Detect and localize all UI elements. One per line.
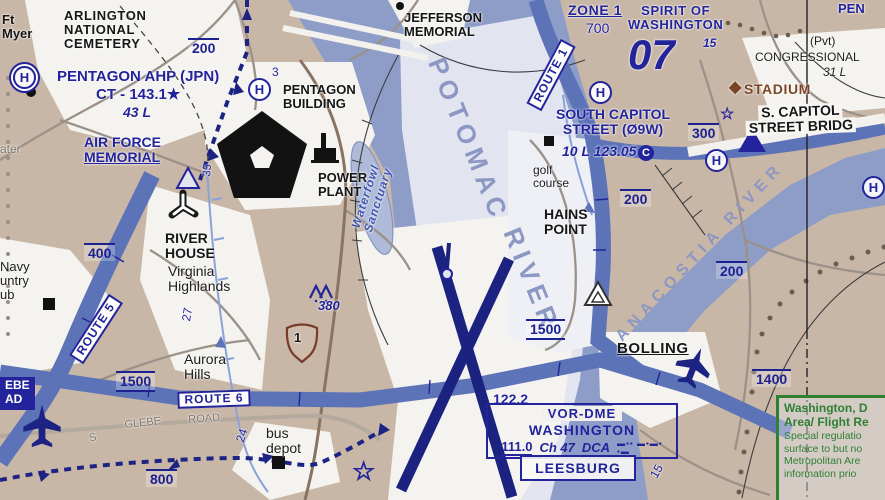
alt-200-nw: 200: [188, 38, 219, 56]
frz-note-box: Washington, DArea/ Flight ReSpecial regu…: [776, 395, 885, 500]
potomac-word: POTOMAC: [422, 54, 513, 226]
stadium-diamond: ◆: [729, 79, 741, 96]
star-waypoint-1: ☆: [720, 106, 734, 123]
route-5: ROUTE 5: [69, 294, 123, 364]
south-capitol-freq: 10 L 123.05: [562, 144, 636, 159]
aurora-hills: AuroraHills: [184, 352, 226, 382]
glebe-s: S: [88, 432, 98, 445]
vor-ident: DCA: [582, 440, 610, 455]
helipad-1: H: [13, 66, 36, 89]
air-force-memorial: AIR FORCEMEMORIAL: [84, 135, 161, 165]
mile-15: 15: [648, 462, 666, 480]
vor-freq: 111.0: [501, 439, 532, 456]
pvt: (Pvt): [810, 35, 835, 48]
jefferson-memorial: JEFFERSONMEMORIAL: [404, 11, 482, 39]
map-canvas[interactable]: FtMyerHARLINGTONNATIONALCEMETERY200PENTA…: [0, 0, 885, 500]
pentagon-building: PENTAGONBUILDING: [283, 83, 356, 111]
helipad-5: H: [862, 176, 885, 199]
vor-dme-box: VOR-DME WASHINGTON 111.0 Ch 47 DCA ▬▪▪ ▬…: [486, 403, 678, 459]
alt-300: 300: [688, 123, 719, 141]
alt-800: 800: [146, 469, 177, 487]
star-waypoint-2: ☆: [352, 458, 375, 486]
congressional: CONGRESSIONAL: [755, 51, 860, 64]
zone-1: ZONE 1: [568, 3, 622, 18]
hains-point: HAINSPOINT: [544, 207, 588, 237]
mt-380: 380: [318, 299, 340, 313]
leesburg-box: LEESBURG: [520, 455, 636, 481]
ft-myer: FtMyer: [2, 13, 32, 41]
route-1: ROUTE 1: [526, 39, 575, 111]
mile-24: 24: [234, 427, 250, 444]
route-6: ROUTE 6: [177, 389, 251, 408]
pentagon-ahp-name: PENTAGON AHP (JPN): [57, 69, 219, 85]
alt-400: 400: [84, 243, 115, 261]
river-house: RIVERHOUSE: [165, 231, 215, 261]
mile-27: 27: [180, 307, 195, 322]
road: ROAD: [188, 413, 221, 427]
bus-depot: busdepot: [266, 426, 301, 456]
zone-1-alt: 700: [586, 21, 609, 36]
frz-note-text: Washington, DArea/ Flight ReSpecial regu…: [784, 401, 885, 481]
navy-country-club: Navyuntryub: [0, 260, 30, 302]
us1-number: 1: [294, 331, 301, 345]
alt-1500-west: 1500: [116, 371, 155, 392]
big-07: 07: [628, 36, 675, 74]
s-capitol-street-bridge: S. CAPITOLSTREET BRIDG: [745, 102, 856, 136]
anacostia-river: ANACOSTIA RIVER: [613, 159, 788, 345]
south-capitol-street: SOUTH CAPITOLSTREET (Ø9W): [556, 107, 670, 137]
alt-1400: 1400: [752, 369, 791, 387]
helipad-4: H: [705, 149, 728, 172]
vor-dme-name: WASHINGTON: [488, 422, 676, 438]
helipad-2: H: [248, 78, 271, 101]
pentagon-ahp-43l: 43 L: [123, 105, 151, 120]
vor-morse-code: ▬▪▪ ▬▪▬▪ ▪▬: [617, 440, 663, 456]
spirit-of-washington: SPIRIT OFWASHINGTON: [628, 4, 723, 32]
pentagon-ahp-ct: CT - 143.1★: [96, 87, 180, 103]
spirit-15: 15: [703, 37, 716, 50]
alt-200-mid: 200: [620, 189, 651, 207]
vor-dme-freq-line: 111.0 Ch 47 DCA ▬▪▪ ▬▪▬▪ ▪▬: [488, 439, 676, 456]
vor-dme-title: VOR-DME: [542, 406, 622, 421]
water-edge: ater: [0, 143, 21, 156]
arlington-national-cemetery: ARLINGTONNATIONALCEMETERY: [64, 9, 146, 51]
helipad-3: H: [589, 81, 612, 104]
map-labels: FtMyerHARLINGTONNATIONALCEMETERY200PENTA…: [0, 0, 885, 500]
glebe-road-box: EBEAD: [0, 377, 35, 410]
mile-3: 3: [272, 66, 279, 79]
circled-c: C: [638, 145, 654, 161]
alt-200-east: 200: [716, 261, 747, 279]
mile-35: 35: [202, 164, 215, 177]
bolling: BOLLING: [617, 341, 689, 357]
stadium: STADIUM: [744, 82, 811, 97]
alt-1500-mid: 1500: [526, 319, 565, 340]
congressional-31l: 31 L: [823, 66, 846, 79]
glebe: GLEBE: [124, 416, 162, 432]
virginia-highlands: VirginiaHighlands: [168, 264, 230, 294]
pen-ne: PEN: [838, 2, 865, 16]
vor-channel: Ch 47: [539, 440, 574, 455]
golf-course: golfcourse: [533, 164, 569, 190]
